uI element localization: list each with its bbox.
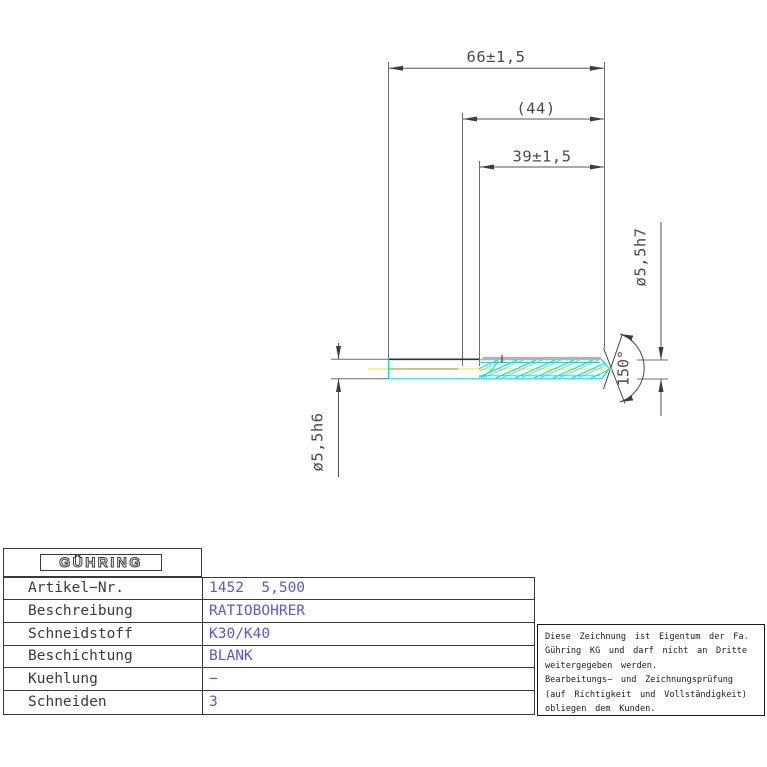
note-line: Bearbeitungs− und Zeichnungsprüfung bbox=[545, 673, 757, 687]
dim-cut-diameter: ø5,5h7 bbox=[632, 228, 650, 287]
note-line: weitergegeben werden. bbox=[545, 659, 757, 673]
row-value-kuehlung: − bbox=[203, 668, 534, 690]
ownership-note-box: Diese Zeichnung ist Eigentum der Fa. Güh… bbox=[537, 624, 765, 716]
table-row: Beschichtung BLANK bbox=[4, 646, 534, 669]
table-row: Kuehlung − bbox=[4, 668, 534, 691]
row-value-schneiden: 3 bbox=[203, 691, 534, 714]
title-block-table: Artikel−Nr. 1452 5,500 Beschreibung RATI… bbox=[3, 577, 535, 715]
row-value-beschichtung: BLANK bbox=[203, 646, 534, 668]
row-label-schneiden: Schneiden bbox=[4, 691, 203, 714]
row-label-artikel-nr: Artikel−Nr. bbox=[4, 578, 203, 600]
dim-point-angle: 150° bbox=[615, 350, 633, 386]
note-line: Gühring KG und darf nicht an Dritte bbox=[545, 644, 757, 658]
dim-flute-length: 39±1,5 bbox=[513, 148, 572, 166]
row-label-beschichtung: Beschichtung bbox=[4, 646, 203, 668]
drill-flutes bbox=[458, 355, 631, 379]
row-value-beschreibung: RATIOBOHRER bbox=[203, 600, 534, 622]
note-line: obliegen dem Kunden. bbox=[545, 702, 757, 716]
note-line: Diese Zeichnung ist Eigentum der Fa. bbox=[545, 630, 757, 644]
logo-cell: GÜHRING bbox=[3, 548, 202, 577]
row-label-kuehlung: Kuehlung bbox=[4, 668, 203, 690]
dim-shank-diameter: ø5,5h6 bbox=[309, 413, 327, 472]
note-line: (auf Richtigkeit und Vollständigkeit) bbox=[545, 688, 757, 702]
table-row: Artikel−Nr. 1452 5,500 bbox=[4, 578, 534, 601]
drawing-sheet: 66±1,5 (44) 39±1,5 ø5,5h6 ø5,5h7 150° GÜ… bbox=[0, 0, 767, 767]
table-row: Schneiden 3 bbox=[4, 691, 534, 714]
guehring-logo: GÜHRING bbox=[40, 554, 162, 571]
row-value-artikel-nr: 1452 5,500 bbox=[203, 578, 534, 600]
dim-overall-length: 66±1,5 bbox=[467, 48, 526, 66]
dimension-lines bbox=[339, 68, 662, 477]
table-row: Beschreibung RATIOBOHRER bbox=[4, 600, 534, 623]
table-row: Schneidstoff K30/K40 bbox=[4, 623, 534, 646]
row-label-beschreibung: Beschreibung bbox=[4, 600, 203, 622]
logo-text: GÜHRING bbox=[59, 555, 143, 569]
technical-drawing: 66±1,5 (44) 39±1,5 ø5,5h6 ø5,5h7 150° bbox=[0, 0, 767, 545]
extension-lines bbox=[331, 62, 668, 379]
dim-reference-length: (44) bbox=[516, 100, 555, 118]
row-label-schneidstoff: Schneidstoff bbox=[4, 623, 203, 645]
row-value-schneidstoff: K30/K40 bbox=[203, 623, 534, 645]
